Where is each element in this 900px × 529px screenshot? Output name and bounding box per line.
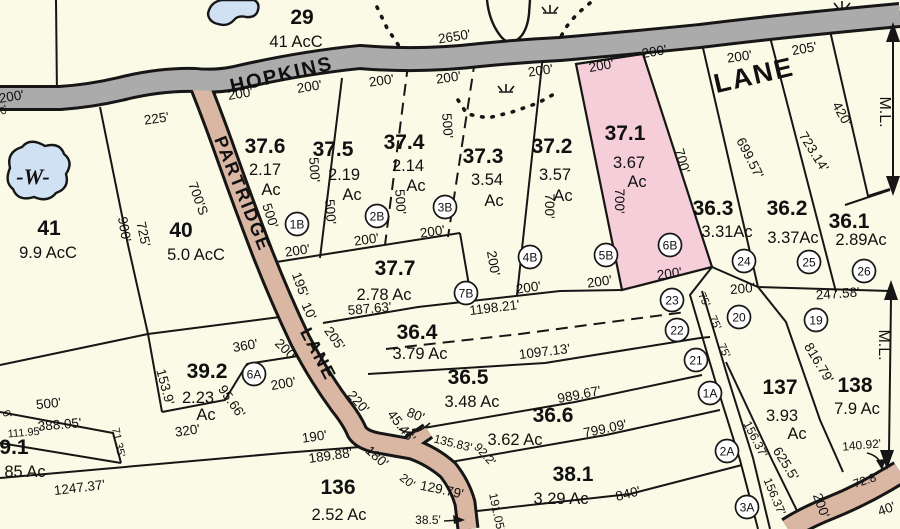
- dimension-label: 500': [306, 157, 323, 183]
- parcel-acreage-37-6: Ac: [261, 181, 280, 199]
- parcel-acreage-138: 7.9 Ac: [834, 400, 880, 418]
- badge-text: 6B: [663, 239, 678, 253]
- badge-text: 20: [732, 311, 746, 325]
- badge-text: 3A: [740, 501, 755, 515]
- parcel-number-38-1[interactable]: 38.1: [553, 463, 594, 486]
- parcel-number-37-3[interactable]: 37.3: [463, 145, 504, 168]
- parcel-acreage-36-4: 3.79 Ac: [392, 345, 447, 363]
- lot-badge-1A: 1A: [699, 382, 722, 405]
- badge-text: 3B: [438, 201, 453, 215]
- badge-text: 6A: [247, 368, 262, 382]
- parcel-number-138[interactable]: 138: [837, 374, 872, 397]
- parcel-acreage-29: 41 AcC: [269, 33, 322, 51]
- badge-text: 25: [802, 256, 816, 270]
- parcel-number-37-1[interactable]: 37.1: [605, 122, 646, 145]
- parcel-acreage-39-2: Ac: [196, 406, 215, 424]
- parcel-acreage-36-1: 2.89Ac: [835, 231, 886, 249]
- parcel-number-37-2[interactable]: 37.2: [532, 135, 573, 158]
- parcel-number-41[interactable]: 41: [37, 217, 61, 240]
- parcel-number-36-1[interactable]: 36.1: [829, 210, 870, 233]
- parcel-acreage-37-3: 3.54: [471, 171, 503, 189]
- parcel-acreage-36-3: 3.31Ac: [701, 223, 752, 241]
- parcel-acreage-37-5: 2.19: [328, 166, 360, 184]
- lot-badge-1B: 1B: [286, 213, 309, 236]
- badge-text: 7B: [459, 287, 474, 301]
- parcel-acreage-38-1: 3.29 Ac: [533, 490, 588, 508]
- dimension-label: 500': [392, 189, 409, 215]
- lot-badge-2B: 2B: [366, 205, 389, 228]
- map-canvas[interactable]: 2941 AcC419.9 AcC405.0 AcC37.62.17Ac37.5…: [0, 0, 900, 529]
- badge-text: 22: [670, 324, 684, 338]
- badge-text: 26: [857, 265, 871, 279]
- match-line-label: M.L.: [876, 96, 893, 127]
- parcel-acreage-136: 2.52 Ac: [311, 506, 366, 524]
- lot-badge-19: 19: [805, 309, 828, 332]
- parcel-acreage-39-1: 85 Ac: [4, 463, 45, 481]
- parcel-acreage-39-2: 2.23: [182, 389, 214, 407]
- parcel-acreage-36-2: 3.37Ac: [767, 229, 818, 247]
- parcel-number-37-6[interactable]: 37.6: [245, 135, 286, 158]
- badge-text: 21: [689, 354, 703, 368]
- dimension-label: 500': [322, 199, 339, 225]
- parcel-acreage-137: Ac: [787, 425, 806, 443]
- badge-text: 4B: [523, 251, 538, 265]
- lot-badge-5B: 5B: [595, 244, 618, 267]
- parcel-number-37-7[interactable]: 37.7: [375, 257, 416, 280]
- lot-badge-3B: 3B: [434, 196, 457, 219]
- lot-badge-25: 25: [798, 251, 821, 274]
- parcel-acreage-37-4: 2.14: [392, 157, 424, 175]
- dimension-label: 38.5': [415, 513, 441, 527]
- parcel-number-37-4[interactable]: 37.4: [384, 131, 425, 154]
- badge-text: 2B: [370, 210, 385, 224]
- lot-badge-2A: 2A: [716, 440, 739, 463]
- parcel-acreage-37-2: 3.57: [539, 166, 571, 184]
- parcel-acreage-37-1: 3.67: [613, 154, 645, 172]
- parcel-acreage-37-6: 2.17: [249, 161, 281, 179]
- wetland-label: -W-: [16, 164, 49, 189]
- lot-badge-6A: 6A: [243, 363, 266, 386]
- badge-text: 2A: [720, 445, 735, 459]
- parcel-number-136[interactable]: 136: [320, 476, 355, 499]
- parcel-acreage-37-4: Ac: [406, 177, 425, 195]
- badge-text: 1A: [703, 387, 718, 401]
- parcel-acreage-37-1: Ac: [627, 173, 646, 191]
- parcel-number-36-4[interactable]: 36.4: [397, 321, 438, 344]
- parcel-number-29[interactable]: 29: [290, 6, 313, 29]
- dimension-label: 700': [542, 193, 557, 218]
- lot-badge-23: 23: [661, 289, 684, 312]
- dimension-label: 247.58': [815, 284, 860, 302]
- lot-badge-24: 24: [733, 250, 756, 273]
- parcel-acreage-37-5: Ac: [342, 186, 361, 204]
- badge-text: 19: [809, 314, 823, 328]
- parcel-number-39-2[interactable]: 39.2: [187, 360, 228, 383]
- badge-text: 1B: [290, 218, 305, 232]
- badge-text: 23: [665, 294, 679, 308]
- lot-badge-21: 21: [685, 349, 708, 372]
- dimension-label: 200': [729, 280, 755, 297]
- parcel-number-40[interactable]: 40: [169, 219, 192, 242]
- dimension-label: 500': [35, 395, 62, 413]
- parcel-acreage-137: 3.93: [766, 407, 798, 425]
- parcel-number-137[interactable]: 137: [762, 376, 797, 399]
- parcel-acreage-41: 9.9 AcC: [19, 244, 77, 262]
- badge-text: 24: [737, 255, 751, 269]
- parcel-acreage-36-5: 3.48 Ac: [444, 393, 499, 411]
- parcel-number-36-6[interactable]: 36.6: [533, 404, 574, 427]
- parcel-number-36-5[interactable]: 36.5: [448, 366, 489, 389]
- parcel-number-36-3[interactable]: 36.3: [693, 197, 734, 220]
- dimension-label: 500': [439, 113, 456, 139]
- lot-badge-3A: 3A: [736, 496, 759, 519]
- lot-badge-20: 20: [728, 306, 751, 329]
- parcel-acreage-40: 5.0 AcC: [167, 246, 225, 264]
- lot-badge-26: 26: [853, 260, 876, 283]
- parcel-map[interactable]: 2941 AcC419.9 AcC405.0 AcC37.62.17Ac37.5…: [0, 0, 900, 529]
- parcel-number-36-2[interactable]: 36.2: [767, 197, 808, 220]
- parcel-acreage-36-6: 3.62 Ac: [487, 431, 542, 449]
- match-line-label: M.L.: [875, 329, 892, 360]
- lot-badge-4B: 4B: [519, 246, 542, 269]
- lot-badge-6B: 6B: [659, 234, 682, 257]
- lot-badge-22: 22: [666, 319, 689, 342]
- badge-text: 5B: [599, 249, 614, 263]
- lot-badge-7B: 7B: [455, 282, 478, 305]
- dimension-label: 700': [612, 188, 627, 213]
- parcel-acreage-37-3: Ac: [484, 192, 503, 210]
